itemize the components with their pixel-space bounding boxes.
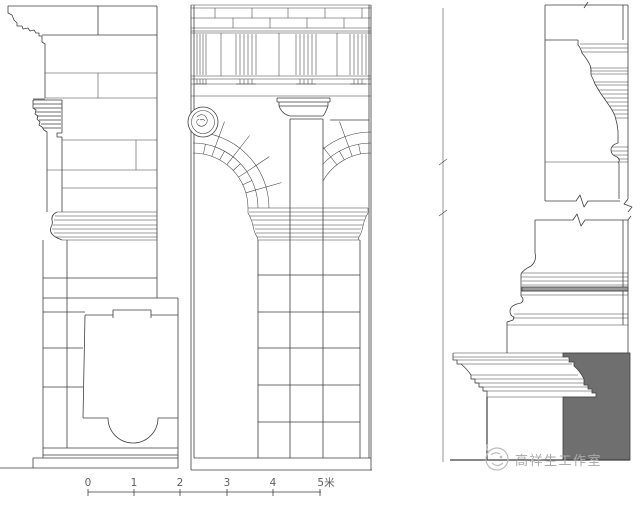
impost-capitals: [248, 208, 368, 240]
guttae: [194, 79, 366, 84]
column-shaft: [290, 119, 323, 458]
triglyphs: [197, 34, 366, 75]
cornice-profile: [8, 6, 157, 98]
pier-masonry: [258, 240, 360, 458]
scale-label-3: 3: [224, 477, 231, 489]
spandrel-medallion-rosette: [188, 107, 218, 137]
entablature-profile-curve: [578, 40, 619, 199]
section-poche: [563, 353, 630, 460]
metope-joints: [221, 33, 337, 76]
right-arch-voussoirs: [323, 122, 371, 181]
scale-label-2: 2: [177, 477, 184, 489]
architectural-drawing-canvas: 0 1 2 3 4 5米 高祥生工作室: [0, 0, 640, 507]
column-base-bands: [507, 273, 628, 325]
bay-frame-edges: [191, 5, 371, 470]
scale-label-5: 5米: [317, 476, 335, 489]
niche-panel: [83, 310, 178, 443]
base-plinth-left: [0, 448, 178, 468]
molding-profile-detail-drawing: [439, 2, 632, 462]
upper-block-outline: [545, 2, 628, 201]
molding-band-shaded: [522, 287, 628, 291]
scale-label-1: 1: [131, 477, 138, 489]
scale-bar: 0 1 2 3 4 5米: [85, 476, 335, 496]
column-base-profile-curve: [507, 253, 536, 353]
dimension-line: [439, 8, 447, 462]
watermark-text: 高祥生工作室: [515, 453, 602, 469]
pier-side-section-drawing: [0, 6, 178, 468]
studio-logo-icon: [486, 444, 508, 470]
drawing-svg: 0 1 2 3 4 5米 高祥生工作室: [0, 0, 640, 507]
impost-cornice-band: [52, 212, 157, 240]
base-plinth-middle: [191, 458, 372, 470]
masonry-wall-lower: [43, 6, 178, 458]
scale-bar-line: [88, 489, 321, 496]
arch-bay-elevation-drawing: [188, 5, 372, 470]
scale-label-0: 0: [85, 477, 92, 489]
column-capital: [277, 98, 369, 120]
scale-label-4: 4: [270, 477, 277, 489]
pilaster-capital-profile: [33, 99, 62, 212]
lower-block-top-break: [535, 214, 631, 226]
